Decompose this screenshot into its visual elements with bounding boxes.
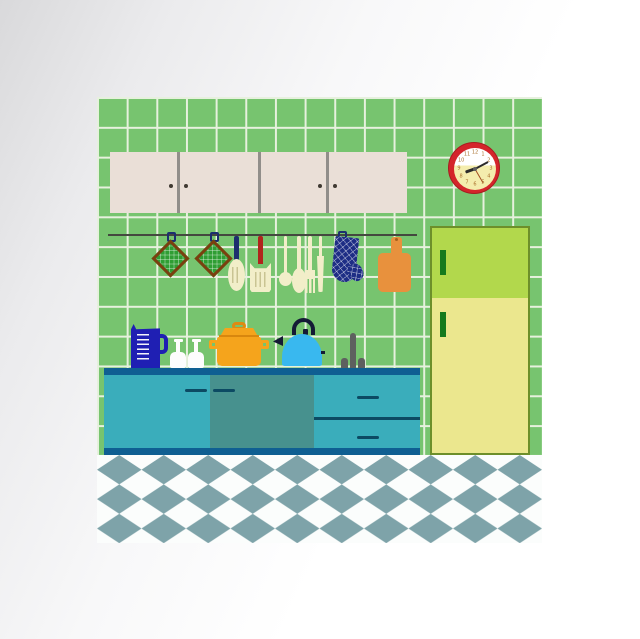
faucet-knob: [341, 358, 348, 368]
page-background: 121234567891011: [0, 0, 640, 639]
door-handle: [213, 389, 235, 392]
spoon-bowl: [292, 268, 306, 293]
kitchen-scene: 121234567891011: [97, 97, 542, 543]
jug-handle: [158, 334, 168, 354]
fork-tines: [305, 270, 315, 293]
spoon-handle: [297, 236, 301, 270]
kitchen-counter: [104, 368, 420, 455]
clock-center-pin: [473, 167, 477, 171]
checkered-floor: [97, 455, 542, 543]
cooking-pot: [217, 337, 261, 366]
bottle-body: [188, 352, 204, 368]
cutting-board-hole: [395, 238, 398, 241]
wall-clock: 121234567891011: [448, 142, 500, 194]
jug-measure-marks: [137, 334, 149, 363]
ladle-bowl: [279, 272, 292, 286]
clock-numeral: 11: [464, 153, 470, 158]
drawer-handle: [357, 436, 379, 439]
slotted-spoon-head: [228, 259, 245, 291]
faucet-knob: [358, 358, 365, 368]
pot-handle: [209, 340, 218, 349]
cabinet-handle-dot: [184, 184, 188, 188]
clock-numeral: 8: [460, 175, 463, 180]
slotted-spoon-handle: [234, 236, 239, 261]
clock-numeral: 2: [487, 159, 490, 164]
fridge-handle: [440, 312, 446, 337]
bottle: [170, 339, 186, 368]
clock-numeral: 4: [487, 175, 490, 180]
fridge-top-door: [432, 228, 528, 298]
drawer-handle: [357, 396, 379, 399]
cutting-board: [378, 253, 411, 292]
cabinet-door-divider: [177, 152, 180, 213]
counter-base: [104, 448, 420, 455]
fork-handle: [308, 236, 312, 272]
refrigerator: [430, 226, 530, 455]
fridge-handle: [440, 250, 446, 275]
pot-handle: [260, 340, 269, 349]
fridge-bottom-door: [432, 298, 528, 453]
cabinet-handle-dot: [169, 184, 173, 188]
clock-face: 121234567891011: [454, 148, 496, 190]
cabinet-handle-dot: [318, 184, 322, 188]
counter-top: [104, 368, 420, 375]
clock-numeral: 5: [481, 180, 484, 185]
bottle-body: [170, 352, 186, 368]
clock-numeral: 3: [489, 167, 492, 172]
faucet: [350, 333, 356, 368]
cabinet-door-divider: [326, 152, 329, 213]
cabinet-door-divider: [258, 152, 261, 213]
clock-numeral: 1: [481, 153, 484, 158]
door-handle: [185, 389, 207, 392]
clock-numeral: 6: [473, 183, 476, 188]
drawer-divider: [314, 417, 420, 420]
clock-numeral: 10: [458, 159, 464, 164]
cabinet-handle-dot: [333, 184, 337, 188]
clock-numeral: 7: [465, 180, 468, 185]
kettle-nub: [321, 351, 325, 354]
bottle: [188, 339, 204, 368]
clock-numeral: 12: [472, 151, 478, 156]
counter-door-left: [104, 375, 210, 448]
clock-numeral: 9: [457, 167, 460, 172]
turner-handle: [258, 236, 263, 264]
counter-door-middle: [210, 375, 314, 448]
upper-cabinet: [110, 152, 407, 213]
ladle-handle: [284, 236, 287, 274]
knife-handle: [319, 236, 322, 258]
